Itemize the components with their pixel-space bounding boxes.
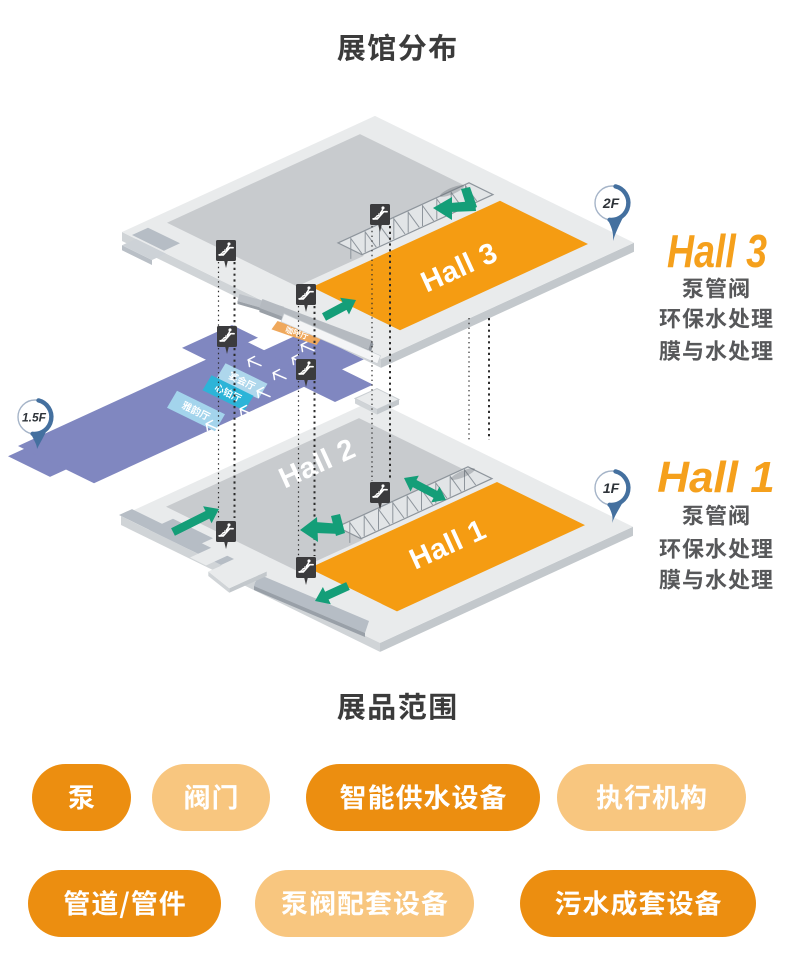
svg-text:1F: 1F <box>603 480 620 496</box>
svg-text:2F: 2F <box>602 195 620 211</box>
svg-text:Hall 1: Hall 1 <box>657 453 774 502</box>
svg-text:1.5F: 1.5F <box>22 410 47 424</box>
svg-text:Hall 3: Hall 3 <box>667 225 767 277</box>
